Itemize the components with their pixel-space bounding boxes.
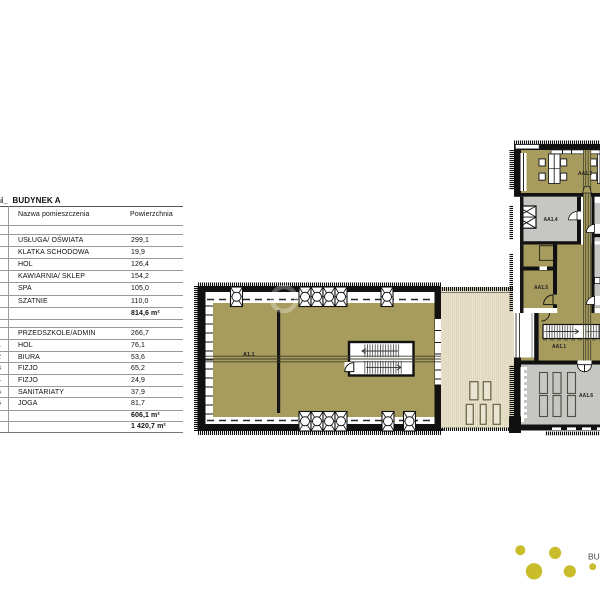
svg-text:AA1.1: AA1.1	[552, 344, 566, 350]
svg-text:BU: BU	[588, 552, 600, 562]
svg-text:AA1.6: AA1.6	[579, 393, 593, 399]
svg-text:A1.1: A1.1	[243, 352, 255, 358]
svg-text:AA1.5: AA1.5	[534, 285, 548, 291]
svg-text:AA1.4: AA1.4	[544, 217, 558, 223]
svg-text:AA1.2: AA1.2	[578, 171, 592, 177]
